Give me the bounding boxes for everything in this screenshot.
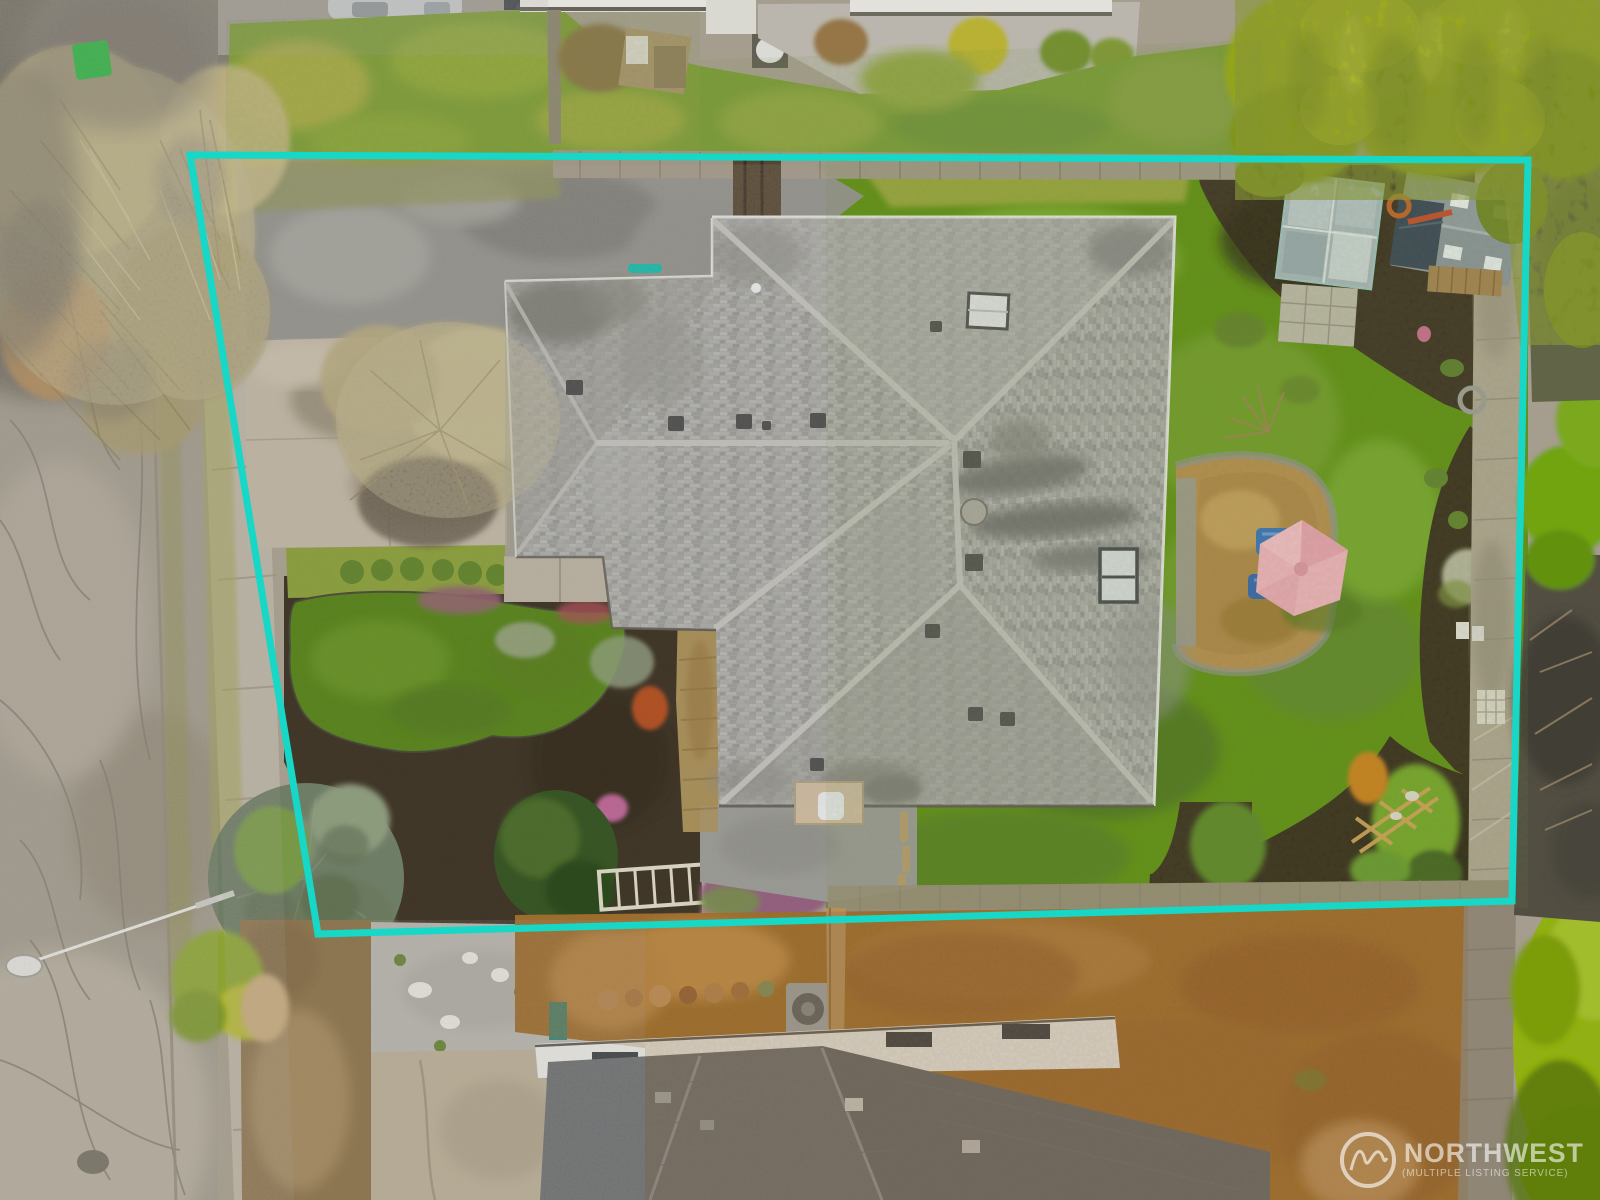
svg-text:NORTHWEST: NORTHWEST bbox=[1404, 1138, 1584, 1168]
svg-text:(MULTIPLE LISTING SERVICE): (MULTIPLE LISTING SERVICE) bbox=[1402, 1168, 1568, 1179]
